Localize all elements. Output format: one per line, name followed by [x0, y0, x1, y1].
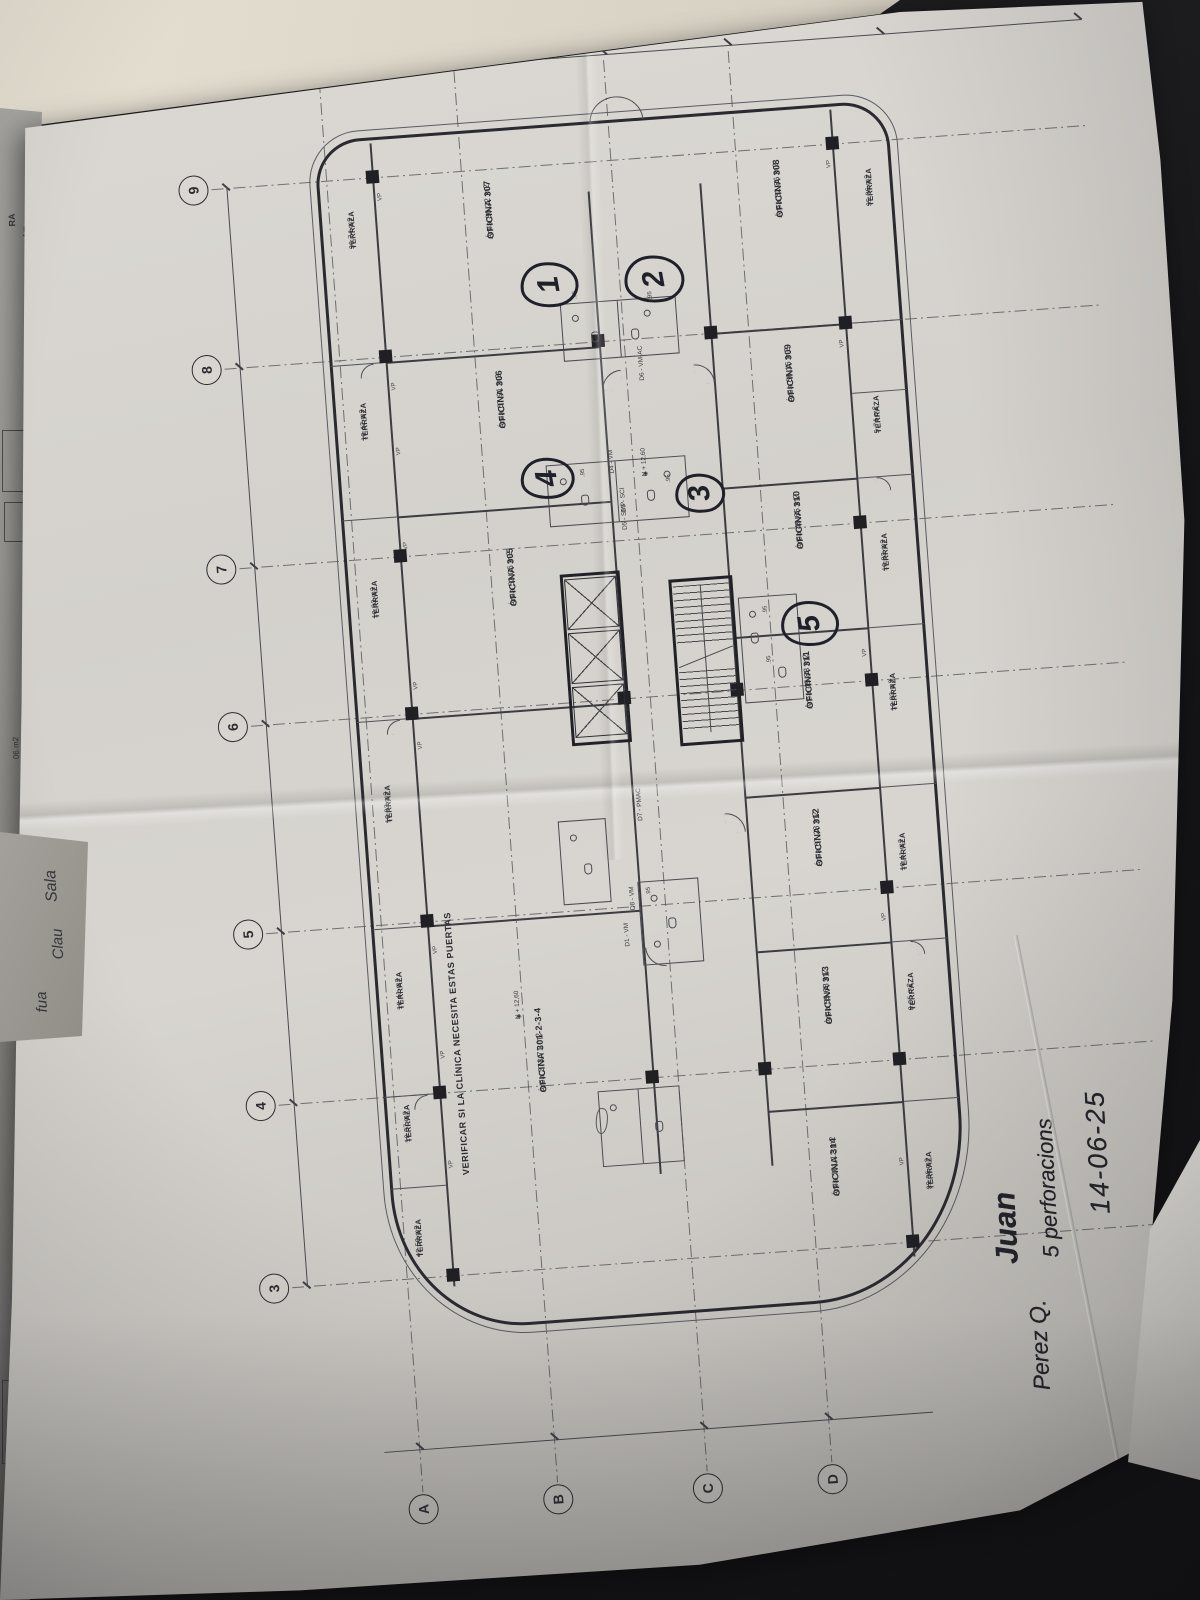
- toilet-fixture: [581, 494, 590, 506]
- dimension-line-top: [368, 19, 1081, 72]
- dim-95-label: .95: [762, 605, 769, 614]
- sheet-cursive-fragment: Clau: [49, 928, 68, 960]
- column: [838, 316, 852, 330]
- photo-of-floor-plan: RA 4 m 06 m2: [0, 0, 1200, 1600]
- column: [865, 673, 879, 687]
- grid-bubble-C: C: [692, 1472, 724, 1504]
- sheet-cursive-fragment: fua: [33, 991, 51, 1013]
- column: [825, 136, 839, 150]
- grid-bubble-B: B: [542, 1483, 574, 1515]
- blueprint-paper: 9 8 7 6 5 4 3 A B C D: [0, 0, 1200, 1600]
- vp-window-label: VP: [881, 913, 888, 921]
- vp-window-label: VP: [413, 681, 420, 689]
- dim-95-label: .95: [646, 887, 653, 896]
- restroom-block: [558, 818, 612, 905]
- column: [704, 326, 718, 340]
- dim-95-label: .95: [580, 468, 587, 477]
- grid-bubble-6: 6: [217, 711, 249, 743]
- grid-bubble-7: 7: [205, 553, 237, 585]
- vp-window-label: VP: [417, 741, 424, 749]
- vp-window-label: VP: [826, 160, 833, 168]
- toilet-fixture: [631, 328, 640, 340]
- grid-bubble-3: 3: [258, 1273, 290, 1305]
- column: [379, 349, 393, 363]
- toilet-fixture: [668, 917, 677, 929]
- sheet-cursive-fragment: Sala: [42, 870, 62, 903]
- dim-95-label: .95: [766, 655, 773, 664]
- handwritten-date: 14-06-25: [1079, 1089, 1116, 1215]
- column: [420, 914, 434, 928]
- dimension-tick: [366, 64, 375, 72]
- column: [906, 1234, 920, 1248]
- elevator-cab: [572, 683, 628, 738]
- toilet-fixture: [591, 331, 600, 343]
- grid-bubble-A: A: [408, 1493, 440, 1525]
- vp-window-label: VP: [440, 1050, 447, 1058]
- toilet-fixture: [584, 863, 593, 875]
- column: [366, 170, 380, 184]
- blueprint-paper-wrap: 9 8 7 6 5 4 3 A B C D: [0, 0, 1200, 1600]
- vp-window-label: VP: [396, 447, 403, 455]
- column: [880, 880, 894, 894]
- vp-window-label: VP: [403, 542, 410, 550]
- dimension-line-bottom: [384, 1412, 933, 1453]
- elevator-cab: [564, 576, 620, 631]
- column: [393, 549, 407, 563]
- overlapping-sheet-corner: Sala Clau fua: [0, 826, 92, 1042]
- column: [446, 1268, 460, 1282]
- grid-bubble-9: 9: [177, 174, 209, 206]
- grid-bubble-5: 5: [232, 918, 264, 950]
- entry-canopy-arc: [588, 94, 644, 123]
- vp-window-label: VP: [899, 1157, 906, 1165]
- grid-bubble-4: 4: [245, 1090, 277, 1122]
- column: [853, 515, 867, 529]
- vp-window-label: VP: [432, 946, 439, 954]
- handwritten-signature-2: Juan Q.: [977, 1546, 1004, 1600]
- handwritten-scribble: Perez Q.: [1024, 1299, 1056, 1391]
- column: [758, 1062, 772, 1076]
- column: [645, 1070, 659, 1084]
- grid-bubble-D: D: [817, 1463, 849, 1495]
- vp-window-label: VP: [448, 1160, 455, 1168]
- column: [893, 1052, 907, 1066]
- column: [405, 706, 419, 720]
- vp-window-label: VP: [391, 382, 398, 390]
- dimension-tick: [449, 58, 458, 66]
- toilet-fixture: [647, 490, 656, 502]
- column: [433, 1085, 447, 1099]
- dim-95-label: .95: [666, 474, 673, 483]
- vp-window-label: VP: [839, 339, 846, 347]
- grid-bubble-8: 8: [191, 354, 223, 386]
- toilet-fixture: [655, 1121, 664, 1133]
- handwritten-signature: Juan: [986, 1191, 1026, 1265]
- vp-window-label: VP: [862, 648, 869, 656]
- vp-window-label: VP: [377, 193, 384, 201]
- toilet-fixture: [750, 632, 759, 644]
- toilet-fixture: [778, 666, 787, 678]
- elevator-cab: [568, 629, 624, 684]
